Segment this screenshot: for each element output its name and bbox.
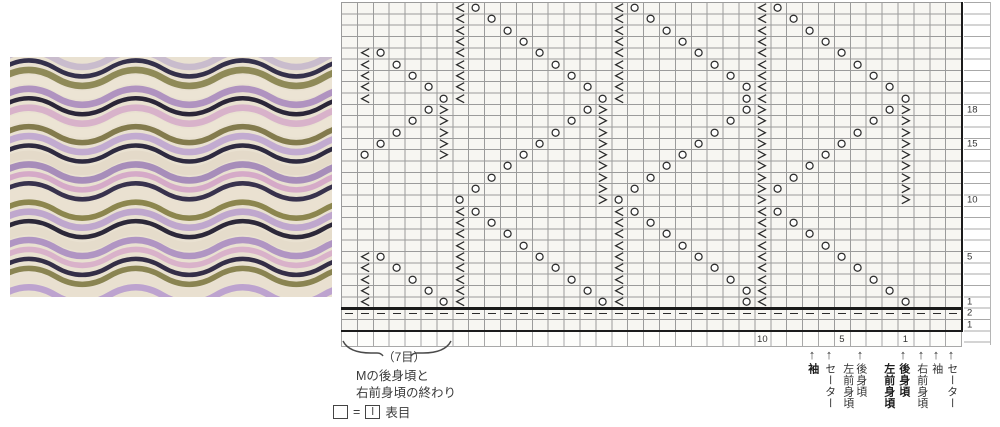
yarn-over-symbol <box>739 81 755 92</box>
left-decrease-symbol <box>357 262 373 273</box>
left-decrease-symbol <box>611 274 627 285</box>
purl-dash-symbol <box>361 313 369 315</box>
right-decrease-symbol <box>595 104 611 115</box>
yarn-over-symbol <box>866 115 882 126</box>
left-decrease-symbol <box>452 36 468 47</box>
yarn-over-symbol <box>898 93 914 104</box>
left-decrease-symbol <box>611 59 627 70</box>
yarn-over-symbol <box>548 127 564 138</box>
purl-dash-symbol <box>425 313 433 315</box>
yarn-over-symbol <box>643 13 659 24</box>
yarn-over-symbol <box>723 70 739 81</box>
yarn-over-symbol <box>707 127 723 138</box>
purl-dash-symbol <box>838 313 846 315</box>
yarn-over-symbol <box>898 296 914 307</box>
row-number: 1 <box>967 296 972 307</box>
left-decrease-symbol <box>357 59 373 70</box>
purl-dash-symbol <box>393 313 401 315</box>
piece-marker-label: セーター <box>945 363 957 409</box>
piece-marker-label: 右前身頃 <box>915 363 927 409</box>
yarn-over-symbol <box>659 25 675 36</box>
yarn-over-symbol <box>627 2 643 13</box>
purl-dash-symbol <box>790 313 798 315</box>
left-decrease-symbol <box>452 206 468 217</box>
yarn-over-symbol <box>580 104 596 115</box>
right-decrease-symbol <box>595 172 611 183</box>
purl-dash-symbol <box>584 313 592 315</box>
right-decrease-symbol <box>754 183 770 194</box>
knit-swatch-photo <box>10 57 332 297</box>
purl-dash-symbol <box>568 313 576 315</box>
yarn-over-symbol <box>739 104 755 115</box>
left-decrease-symbol <box>452 228 468 239</box>
yarn-over-symbol <box>786 217 802 228</box>
purl-dash-symbol <box>377 313 385 315</box>
yarn-over-symbol <box>484 172 500 183</box>
yarn-over-symbol <box>850 127 866 138</box>
left-decrease-symbol <box>452 47 468 58</box>
yarn-over-symbol <box>373 138 389 149</box>
purl-dash-symbol <box>806 313 814 315</box>
left-decrease-symbol <box>754 13 770 24</box>
row-number: 10 <box>967 195 978 206</box>
right-decrease-symbol <box>898 160 914 171</box>
yarn-over-symbol <box>421 81 437 92</box>
purl-dash-symbol <box>902 313 910 315</box>
yarn-over-symbol <box>739 296 755 307</box>
yarn-over-symbol <box>850 262 866 273</box>
stitch-number: 5 <box>839 334 844 345</box>
purl-dash-symbol <box>520 313 528 315</box>
yarn-over-symbol <box>818 240 834 251</box>
piece-marker-label: セーター <box>823 363 835 409</box>
right-decrease-symbol <box>898 138 914 149</box>
left-decrease-symbol <box>611 25 627 36</box>
right-decrease-symbol <box>436 104 452 115</box>
purl-dash-symbol <box>886 313 894 315</box>
stitch-number: 1 <box>903 334 908 345</box>
purl-dash-symbol <box>695 313 703 315</box>
yarn-over-symbol <box>436 296 452 307</box>
left-decrease-symbol <box>754 262 770 273</box>
left-decrease-symbol <box>754 285 770 296</box>
yarn-over-symbol <box>357 149 373 160</box>
right-decrease-symbol <box>595 149 611 160</box>
piece-marker-label: 袖 <box>806 363 818 375</box>
yarn-over-symbol <box>405 70 421 81</box>
yarn-over-symbol <box>786 172 802 183</box>
up-arrow-icon: ↑ <box>948 347 955 362</box>
right-decrease-symbol <box>595 160 611 171</box>
chart-bottom-bold-line <box>341 307 963 309</box>
yarn-over-symbol <box>500 160 516 171</box>
purl-dash-symbol <box>409 313 417 315</box>
purl-dash-symbol <box>599 313 607 315</box>
left-decrease-symbol <box>611 217 627 228</box>
yarn-over-symbol <box>421 104 437 115</box>
pattern-page: 1051 1815105121 （7目） Mの後身頃と 右前身頃の終わり = 表… <box>0 0 1000 427</box>
purl-dash-symbol <box>822 313 830 315</box>
left-decrease-symbol <box>611 93 627 104</box>
purl-dash-symbol <box>774 313 782 315</box>
purl-dash-symbol <box>663 313 671 315</box>
up-arrow-icon: ↑ <box>900 347 907 362</box>
yarn-over-symbol <box>389 127 405 138</box>
purl-dash-symbol <box>552 313 560 315</box>
yarn-over-symbol <box>516 149 532 160</box>
piece-marker-label: 左前身頃 <box>882 363 894 409</box>
swatch-waves <box>10 57 332 297</box>
yarn-over-symbol <box>627 183 643 194</box>
yarn-over-symbol <box>373 251 389 262</box>
purl-dash-symbol <box>631 313 639 315</box>
right-decrease-symbol <box>754 104 770 115</box>
purl-dash-symbol <box>679 313 687 315</box>
left-decrease-symbol <box>611 13 627 24</box>
right-decrease-symbol <box>754 115 770 126</box>
yarn-over-symbol <box>627 206 643 217</box>
yarn-over-symbol <box>564 115 580 126</box>
yarn-over-symbol <box>452 194 468 205</box>
left-decrease-symbol <box>611 2 627 13</box>
left-decrease-symbol <box>754 274 770 285</box>
yarn-over-symbol <box>691 251 707 262</box>
yarn-over-symbol <box>532 251 548 262</box>
yarn-over-symbol <box>421 285 437 296</box>
left-decrease-symbol <box>754 217 770 228</box>
yarn-over-symbol <box>802 228 818 239</box>
yarn-over-symbol <box>691 47 707 58</box>
right-decrease-symbol <box>754 127 770 138</box>
yarn-over-symbol <box>882 104 898 115</box>
legend-empty-box-icon <box>333 405 348 419</box>
right-decrease-symbol <box>898 172 914 183</box>
yarn-over-symbol <box>834 138 850 149</box>
right-decrease-symbol <box>754 149 770 160</box>
right-decrease-symbol <box>754 172 770 183</box>
yarn-over-symbol <box>643 172 659 183</box>
up-arrow-icon: ↑ <box>918 347 925 362</box>
yarn-over-symbol <box>436 93 452 104</box>
row-number-column: 1815105121 <box>964 2 991 345</box>
yarn-over-symbol <box>516 240 532 251</box>
yarn-over-symbol <box>786 13 802 24</box>
yarn-over-symbol <box>770 206 786 217</box>
left-decrease-symbol <box>452 262 468 273</box>
yarn-over-symbol <box>707 59 723 70</box>
left-decrease-symbol <box>452 217 468 228</box>
right-decrease-symbol <box>898 149 914 160</box>
purl-dash-symbol <box>472 313 480 315</box>
left-decrease-symbol <box>452 296 468 307</box>
right-decrease-symbol <box>898 127 914 138</box>
yarn-over-symbol <box>659 160 675 171</box>
purl-dash-symbol <box>711 313 719 315</box>
left-decrease-symbol <box>754 240 770 251</box>
purl-dash-symbol <box>933 313 941 315</box>
left-decrease-symbol <box>754 36 770 47</box>
piece-marker-label: 左前身頃 <box>841 363 853 409</box>
up-arrow-icon: ↑ <box>826 347 833 362</box>
left-decrease-symbol <box>357 251 373 262</box>
purl-dash-symbol <box>870 313 878 315</box>
left-decrease-symbol <box>754 25 770 36</box>
chart-note-line2: 右前身頃の終わり <box>356 382 456 401</box>
yarn-over-symbol <box>739 285 755 296</box>
left-decrease-symbol <box>754 2 770 13</box>
stitch-legend: = 表目 <box>333 402 410 421</box>
yarn-over-symbol <box>834 251 850 262</box>
purl-dash-symbol <box>456 313 464 315</box>
left-decrease-symbol <box>357 70 373 81</box>
yarn-over-symbol <box>405 115 421 126</box>
left-decrease-symbol <box>357 81 373 92</box>
yarn-over-symbol <box>707 262 723 273</box>
yarn-over-symbol <box>468 183 484 194</box>
right-decrease-symbol <box>436 149 452 160</box>
right-decrease-symbol <box>754 138 770 149</box>
right-decrease-symbol <box>595 115 611 126</box>
right-decrease-symbol <box>898 104 914 115</box>
left-decrease-symbol <box>452 13 468 24</box>
yarn-over-symbol <box>468 2 484 13</box>
right-decrease-symbol <box>754 194 770 205</box>
right-decrease-symbol <box>595 138 611 149</box>
yarn-over-symbol <box>595 93 611 104</box>
left-decrease-symbol <box>611 70 627 81</box>
left-decrease-symbol <box>452 93 468 104</box>
yarn-over-symbol <box>373 47 389 58</box>
yarn-over-symbol <box>611 194 627 205</box>
yarn-over-symbol <box>580 81 596 92</box>
row-number: 5 <box>967 251 972 262</box>
left-decrease-symbol <box>754 228 770 239</box>
yarn-over-symbol <box>500 228 516 239</box>
yarn-over-symbol <box>802 160 818 171</box>
left-decrease-symbol <box>611 206 627 217</box>
yarn-over-symbol <box>770 183 786 194</box>
left-decrease-symbol <box>452 25 468 36</box>
yarn-over-symbol <box>389 262 405 273</box>
left-decrease-symbol <box>611 240 627 251</box>
left-decrease-symbol <box>611 36 627 47</box>
purl-dash-symbol <box>727 313 735 315</box>
yarn-over-symbol <box>723 274 739 285</box>
yarn-over-symbol <box>834 47 850 58</box>
yarn-over-symbol <box>389 59 405 70</box>
left-decrease-symbol <box>452 240 468 251</box>
yarn-over-symbol <box>723 115 739 126</box>
yarn-over-symbol <box>484 217 500 228</box>
purl-dash-symbol <box>504 313 512 315</box>
left-decrease-symbol <box>357 274 373 285</box>
left-decrease-symbol <box>754 81 770 92</box>
left-decrease-symbol <box>611 251 627 262</box>
left-decrease-symbol <box>452 285 468 296</box>
left-decrease-symbol <box>452 70 468 81</box>
left-decrease-symbol <box>357 47 373 58</box>
left-decrease-symbol <box>611 296 627 307</box>
right-decrease-symbol <box>436 127 452 138</box>
purl-dash-symbol <box>615 313 623 315</box>
yarn-over-symbol <box>675 36 691 47</box>
yarn-over-symbol <box>866 70 882 81</box>
left-decrease-symbol <box>452 2 468 13</box>
purl-dash-symbol <box>758 313 766 315</box>
yarn-over-symbol <box>580 285 596 296</box>
purl-dash-symbol <box>345 313 353 315</box>
legend-equals: = <box>353 405 360 419</box>
right-decrease-symbol <box>595 183 611 194</box>
left-decrease-symbol <box>611 228 627 239</box>
left-decrease-symbol <box>754 59 770 70</box>
left-decrease-symbol <box>357 296 373 307</box>
right-decrease-symbol <box>595 127 611 138</box>
yarn-over-symbol <box>850 59 866 70</box>
row-number: 18 <box>967 104 978 115</box>
piece-marker-label: 後身頃 <box>897 363 909 398</box>
purl-dash-symbol <box>440 313 448 315</box>
yarn-over-symbol <box>659 228 675 239</box>
knitting-chart-grid <box>341 2 963 332</box>
purl-dash-symbol <box>743 313 751 315</box>
stitch-number: 10 <box>757 334 768 345</box>
yarn-over-symbol <box>468 206 484 217</box>
left-decrease-symbol <box>357 285 373 296</box>
purl-dash-symbol <box>488 313 496 315</box>
up-arrow-icon: ↑ <box>933 347 940 362</box>
yarn-over-symbol <box>532 47 548 58</box>
legend-knit-box-icon <box>365 405 380 419</box>
row-number: 1 <box>967 319 972 330</box>
yarn-over-symbol <box>691 138 707 149</box>
purl-dash-symbol <box>536 313 544 315</box>
yarn-over-symbol <box>675 240 691 251</box>
left-decrease-symbol <box>452 59 468 70</box>
left-decrease-symbol <box>754 251 770 262</box>
yarn-over-symbol <box>818 149 834 160</box>
left-decrease-symbol <box>754 206 770 217</box>
right-decrease-symbol <box>898 194 914 205</box>
yarn-over-symbol <box>675 149 691 160</box>
yarn-over-symbol <box>882 81 898 92</box>
yarn-over-symbol <box>770 2 786 13</box>
left-decrease-symbol <box>452 81 468 92</box>
left-decrease-symbol <box>357 93 373 104</box>
yarn-over-symbol <box>643 217 659 228</box>
piece-marker-label: 後身頃 <box>854 363 866 398</box>
right-decrease-symbol <box>595 194 611 205</box>
yarn-over-symbol <box>516 36 532 47</box>
yarn-over-symbol <box>818 36 834 47</box>
row-number: 15 <box>967 138 978 149</box>
up-arrow-icon: ↑ <box>809 347 816 362</box>
purl-dash-symbol <box>949 313 957 315</box>
yarn-over-symbol <box>564 274 580 285</box>
left-decrease-symbol <box>754 47 770 58</box>
right-decrease-symbol <box>436 138 452 149</box>
right-decrease-symbol <box>898 115 914 126</box>
up-arrow-icon: ↑ <box>857 347 864 362</box>
left-decrease-symbol <box>754 93 770 104</box>
brace-label: （7目） <box>372 348 436 365</box>
yarn-over-symbol <box>500 25 516 36</box>
left-decrease-symbol <box>611 285 627 296</box>
legend-label: 表目 <box>385 402 410 421</box>
left-decrease-symbol <box>611 47 627 58</box>
right-decrease-symbol <box>898 183 914 194</box>
yarn-over-symbol <box>548 262 564 273</box>
yarn-over-symbol <box>405 274 421 285</box>
purl-dash-symbol <box>647 313 655 315</box>
left-decrease-symbol <box>452 251 468 262</box>
yarn-over-symbol <box>802 25 818 36</box>
right-decrease-symbol <box>436 115 452 126</box>
row-number: 2 <box>967 308 972 319</box>
yarn-over-symbol <box>882 285 898 296</box>
left-decrease-symbol <box>611 81 627 92</box>
yarn-over-symbol <box>532 138 548 149</box>
purl-dash-symbol <box>917 313 925 315</box>
left-decrease-symbol <box>754 70 770 81</box>
piece-marker-label: 袖 <box>930 363 942 375</box>
yarn-over-symbol <box>548 59 564 70</box>
left-decrease-symbol <box>611 262 627 273</box>
yarn-over-symbol <box>484 13 500 24</box>
left-decrease-symbol <box>754 296 770 307</box>
yarn-over-symbol <box>739 93 755 104</box>
left-decrease-symbol <box>452 274 468 285</box>
yarn-over-symbol <box>866 274 882 285</box>
yarn-over-symbol <box>564 70 580 81</box>
purl-dash-symbol <box>854 313 862 315</box>
right-decrease-symbol <box>754 160 770 171</box>
yarn-over-symbol <box>595 296 611 307</box>
